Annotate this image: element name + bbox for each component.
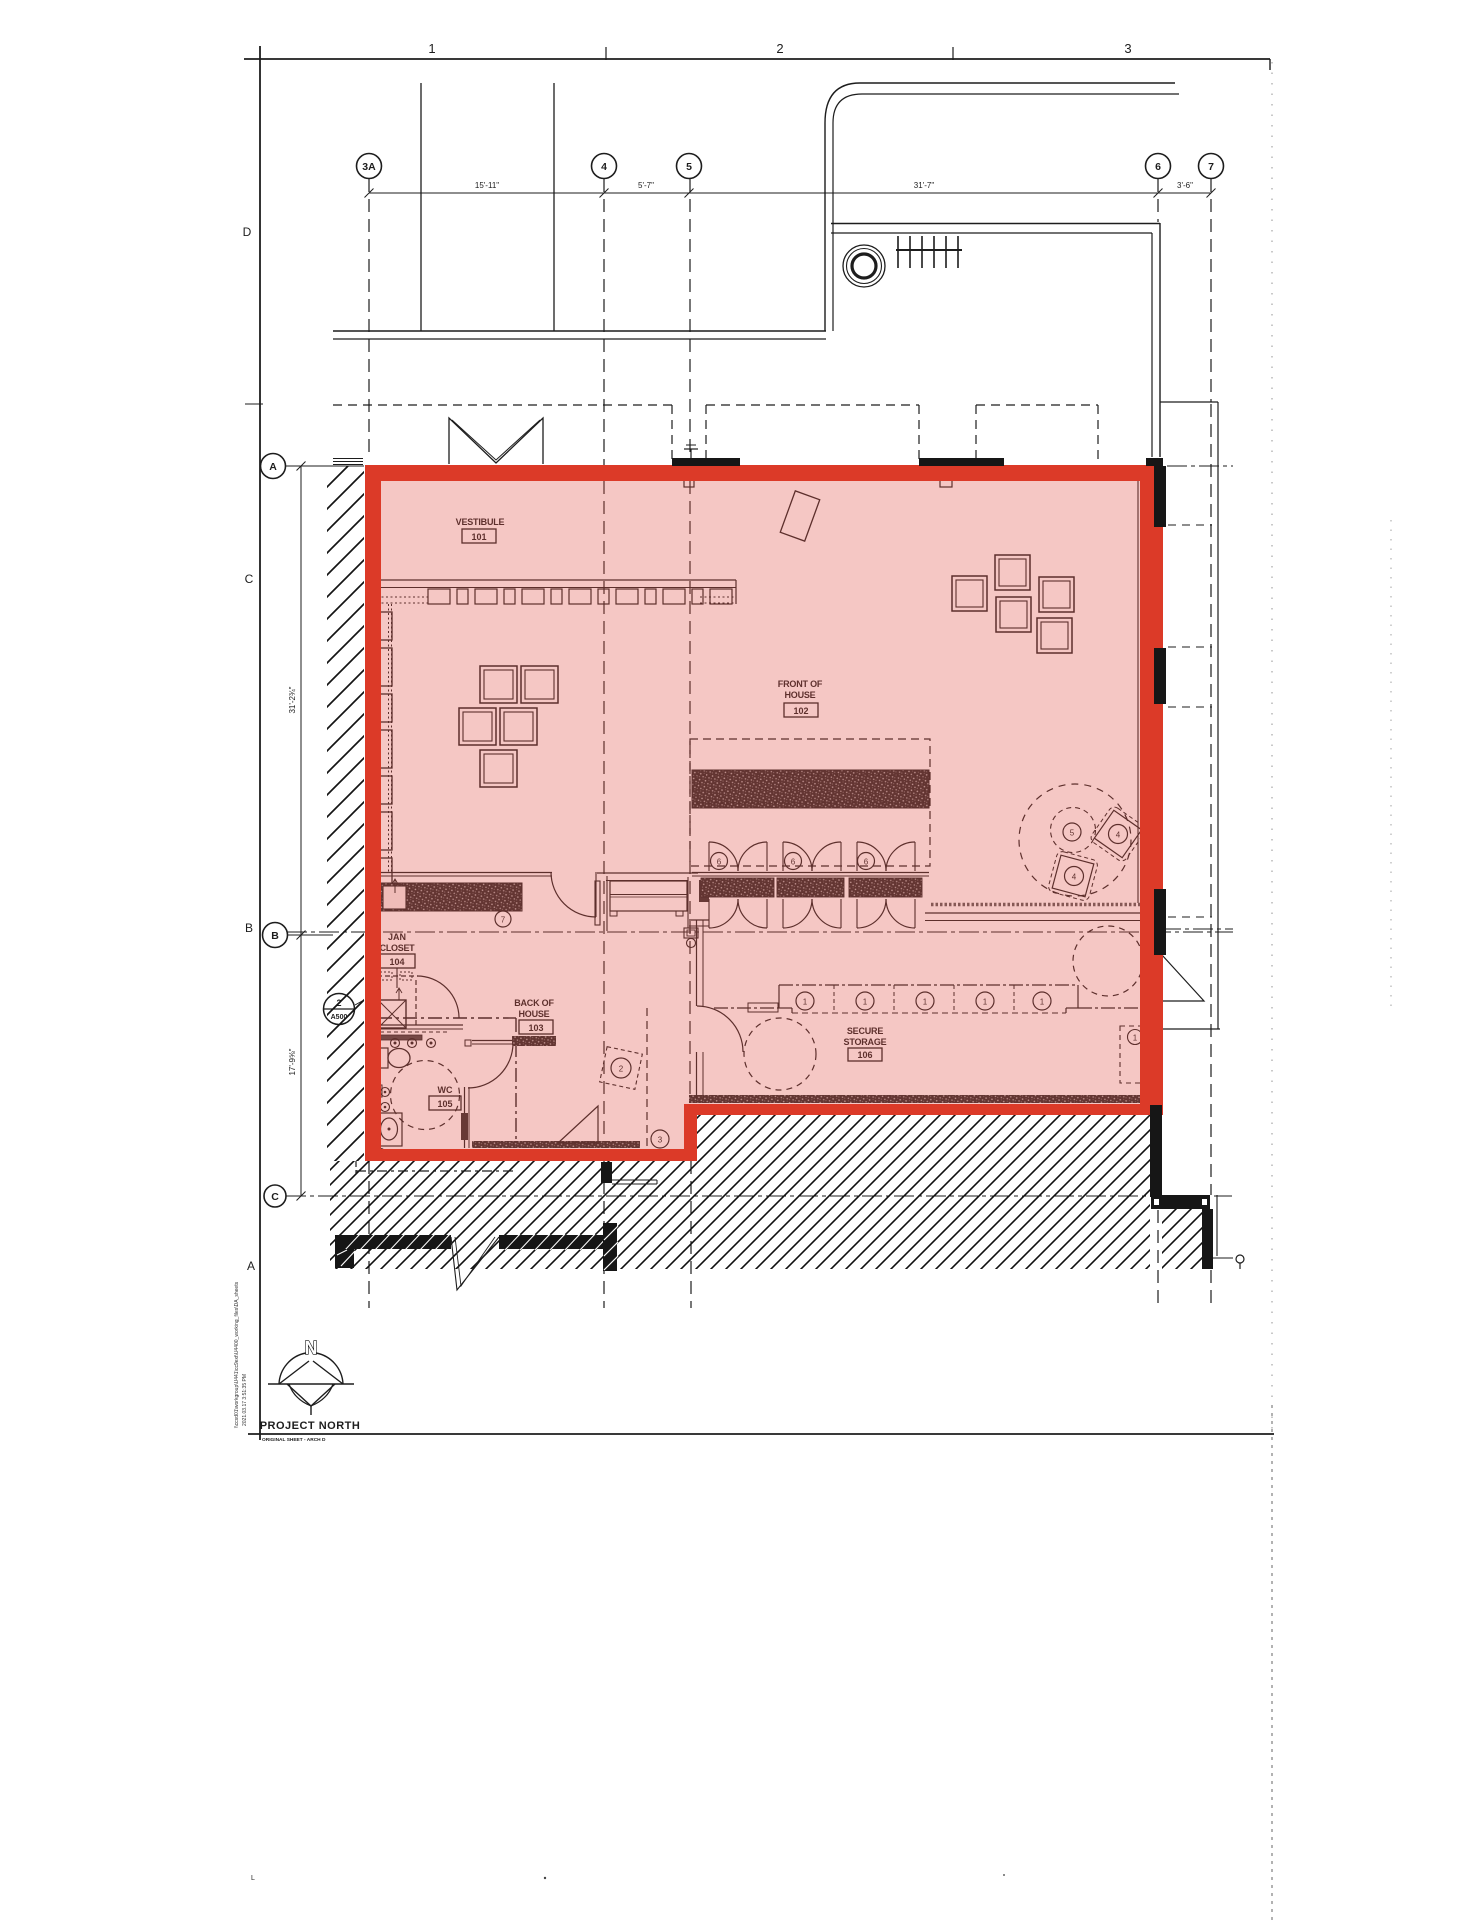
svg-text:5: 5 (686, 161, 692, 173)
svg-text:2: 2 (776, 41, 783, 56)
svg-text:N: N (305, 1338, 318, 1358)
svg-text:6: 6 (1155, 161, 1161, 173)
svg-text:4: 4 (601, 161, 607, 173)
svg-text:3'-6": 3'-6" (1177, 181, 1193, 190)
svg-text:5'-7": 5'-7" (638, 181, 654, 190)
svg-text:2021.03.17 3:51:35 PM: 2021.03.17 3:51:35 PM (242, 1374, 248, 1426)
svg-text:3: 3 (1124, 41, 1131, 56)
svg-text:31'-2¾": 31'-2¾" (288, 686, 297, 713)
svg-text:B: B (245, 921, 253, 935)
svg-text:D: D (243, 225, 252, 239)
svg-text:17'-9⅝": 17'-9⅝" (288, 1048, 297, 1075)
svg-text:A: A (269, 461, 277, 473)
svg-text:B: B (271, 930, 279, 942)
svg-text:31'-7": 31'-7" (914, 181, 935, 190)
svg-text:\\ccsd01\workgroup\U441\cc9ext: \\ccsd01\workgroup\U441\cc9ext\U4400_wor… (234, 1281, 240, 1428)
svg-text:A: A (247, 1259, 255, 1273)
svg-text:3A: 3A (362, 161, 376, 173)
svg-text:15'-11": 15'-11" (475, 181, 499, 190)
svg-text:C: C (271, 1191, 279, 1203)
svg-text:L: L (251, 1875, 255, 1882)
svg-text:1: 1 (428, 41, 435, 56)
svg-text:7: 7 (1208, 161, 1214, 173)
svg-text:PROJECT NORTH: PROJECT NORTH (260, 1420, 361, 1432)
svg-text:ORIGINAL SHEET - ARCH D: ORIGINAL SHEET - ARCH D (262, 1437, 326, 1443)
svg-text:C: C (245, 572, 254, 586)
